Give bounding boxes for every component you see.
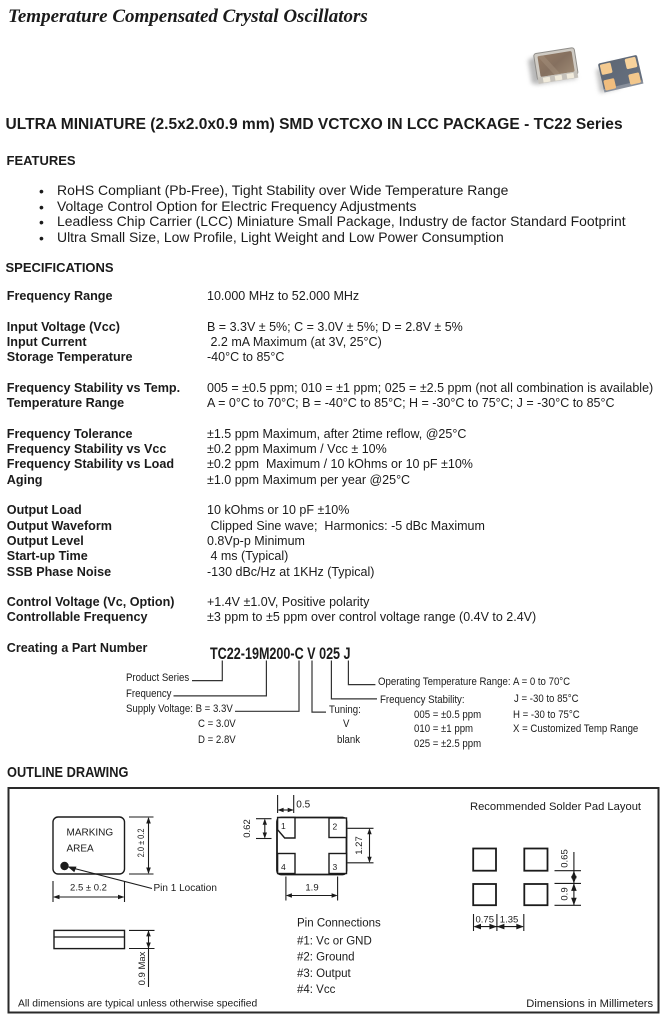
svg-text:1: 1 xyxy=(281,821,286,831)
svg-text:0.5: 0.5 xyxy=(296,800,310,811)
svg-text:All dimensions are typical unl: All dimensions are typical unless otherw… xyxy=(18,999,258,1010)
svg-text:0.62: 0.62 xyxy=(242,819,253,838)
svg-text:1.9: 1.9 xyxy=(305,883,318,894)
svg-text:Pin 1 Location: Pin 1 Location xyxy=(154,883,217,894)
svg-text:Pin Connections: Pin Connections xyxy=(297,918,381,930)
svg-text:#2: Ground: #2: Ground xyxy=(297,952,355,964)
svg-text:1.27: 1.27 xyxy=(354,836,365,855)
svg-text:0.75: 0.75 xyxy=(476,914,495,925)
svg-text:Dimensions in Millimeters: Dimensions in Millimeters xyxy=(526,998,653,1010)
svg-text:0.65: 0.65 xyxy=(559,849,570,868)
svg-text:2.5 ± 0.2: 2.5 ± 0.2 xyxy=(70,883,107,894)
svg-text:#3: Output: #3: Output xyxy=(297,968,352,980)
svg-text:4: 4 xyxy=(281,862,286,872)
svg-text:2.0 ± 0.2: 2.0 ± 0.2 xyxy=(136,828,146,857)
svg-text:MARKING: MARKING xyxy=(67,827,114,838)
svg-text:0.9 Max: 0.9 Max xyxy=(137,951,148,985)
svg-text:3: 3 xyxy=(333,862,338,872)
svg-text:2: 2 xyxy=(333,822,338,832)
svg-text:#1: Vc or GND: #1: Vc or GND xyxy=(297,935,372,947)
svg-text:Recommended Solder Pad Layout: Recommended Solder Pad Layout xyxy=(470,801,642,813)
svg-text:#4: Vcc: #4: Vcc xyxy=(297,984,336,996)
svg-text:0.9: 0.9 xyxy=(559,887,570,900)
svg-text:1.35: 1.35 xyxy=(500,914,519,925)
svg-text:AREA: AREA xyxy=(67,844,95,855)
